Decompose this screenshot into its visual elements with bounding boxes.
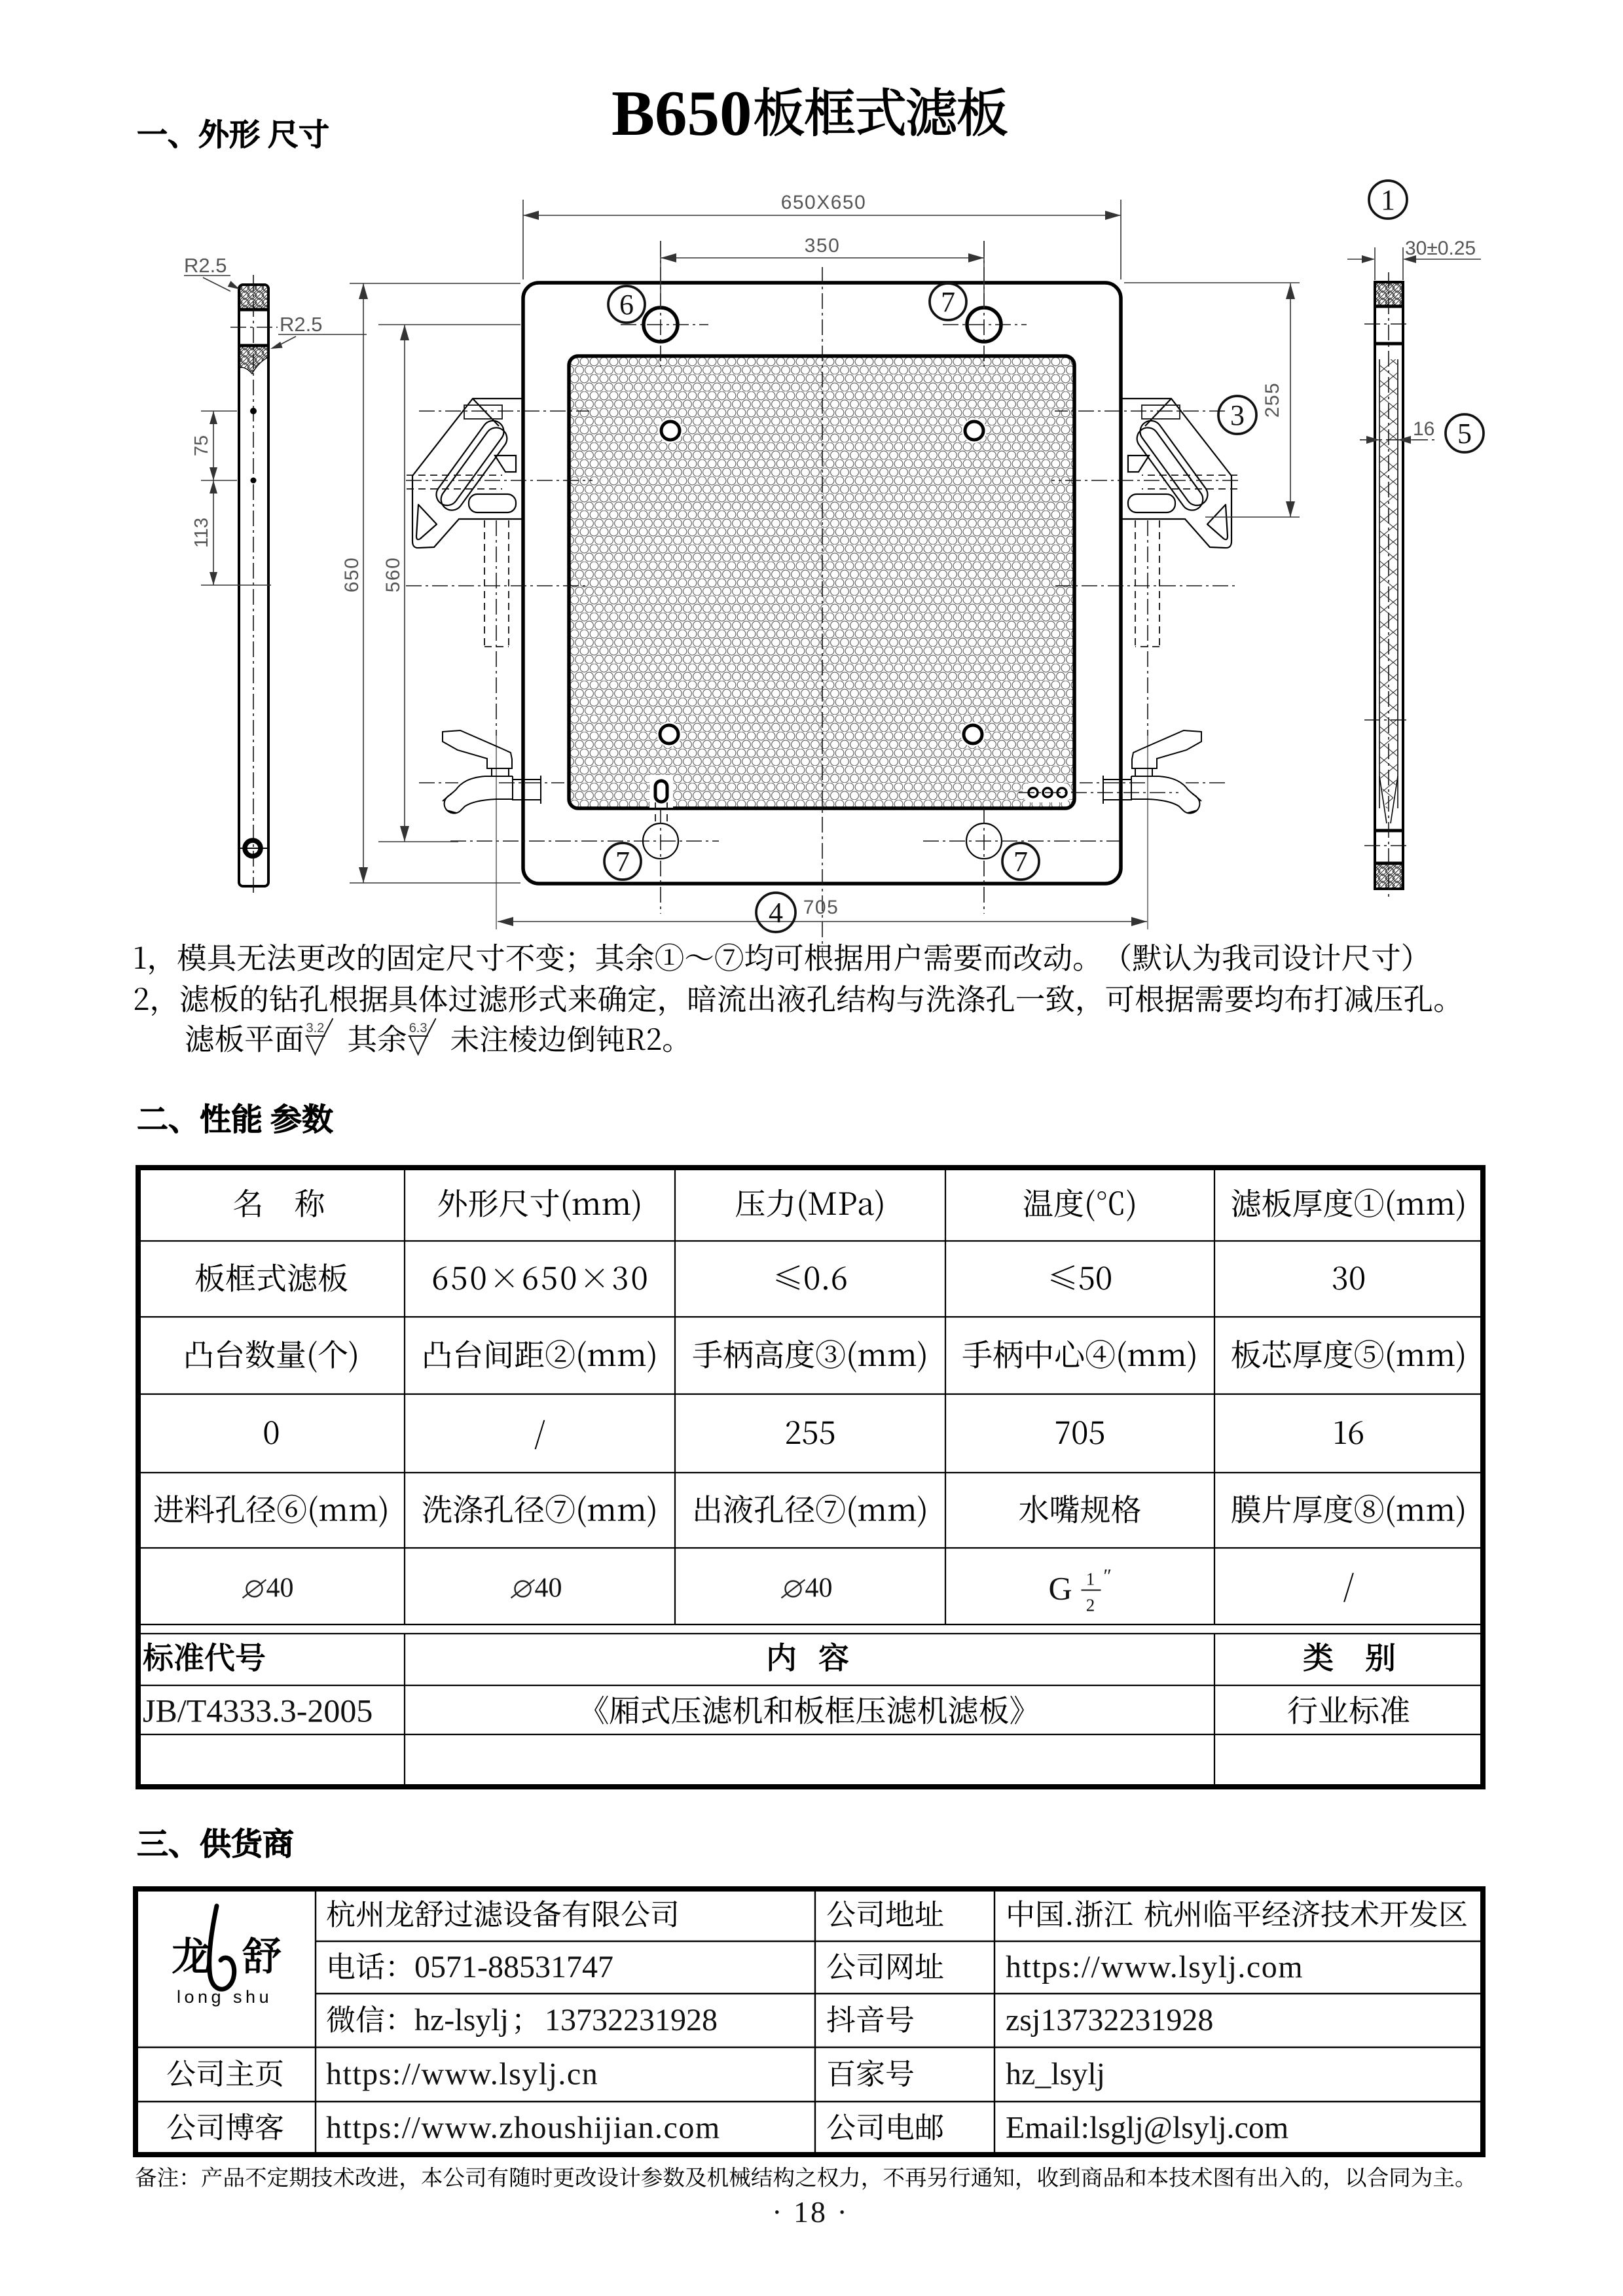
svg-text:″: ″ xyxy=(1104,1566,1112,1587)
svg-text:1: 1 xyxy=(1381,184,1395,216)
svg-text:40: 40 xyxy=(535,1573,562,1604)
svg-text:· 18 ·: · 18 · xyxy=(772,2195,849,2229)
svg-text:255: 255 xyxy=(1262,382,1283,418)
svg-text:13732231928: 13732231928 xyxy=(545,2003,718,2037)
svg-text:7: 7 xyxy=(615,846,630,878)
svg-text:705: 705 xyxy=(803,897,839,918)
svg-text:0571-88531747: 0571-88531747 xyxy=(414,1950,613,1984)
svg-text:Email:lsglj@lsylj.com: Email:lsglj@lsylj.com xyxy=(1006,2111,1288,2145)
svg-text:R2.5: R2.5 xyxy=(184,254,227,277)
svg-text:G: G xyxy=(1049,1570,1072,1607)
svg-text:16: 16 xyxy=(1413,418,1434,440)
svg-text:5: 5 xyxy=(1457,418,1472,450)
svg-text:650: 650 xyxy=(341,557,363,593)
svg-text:7: 7 xyxy=(1013,846,1028,878)
svg-text:R2.5: R2.5 xyxy=(280,313,322,336)
svg-text:75: 75 xyxy=(191,435,212,456)
svg-text:zsj13732231928: zsj13732231928 xyxy=(1006,2003,1213,2037)
svg-text:4: 4 xyxy=(769,897,783,929)
svg-text:3.2: 3.2 xyxy=(306,1021,324,1035)
svg-text:hz-lsylj: hz-lsylj xyxy=(414,2003,509,2037)
svg-text:350: 350 xyxy=(805,235,841,257)
svg-text:https://www.zhoushijian.com: https://www.zhoushijian.com xyxy=(326,2111,721,2145)
svg-text:JB/T4333.3-2005: JB/T4333.3-2005 xyxy=(143,1693,373,1729)
svg-text:6: 6 xyxy=(619,289,634,321)
svg-text:30±0.25: 30±0.25 xyxy=(1405,238,1476,259)
svg-text:hz_lsylj: hz_lsylj xyxy=(1006,2057,1105,2092)
svg-text:https://www.lsylj.com: https://www.lsylj.com xyxy=(1006,1950,1304,1984)
svg-text:3: 3 xyxy=(1230,399,1245,431)
svg-text:https://www.lsylj.cn: https://www.lsylj.cn xyxy=(326,2057,598,2092)
svg-text:40: 40 xyxy=(805,1573,833,1604)
svg-text:1: 1 xyxy=(1086,1570,1095,1589)
svg-text:560: 560 xyxy=(382,557,404,593)
svg-text:2: 2 xyxy=(1086,1596,1095,1615)
svg-text:40: 40 xyxy=(266,1573,294,1604)
svg-text:113: 113 xyxy=(191,518,212,548)
svg-text:long shu: long shu xyxy=(177,1987,272,2007)
svg-text:B650: B650 xyxy=(611,78,752,149)
svg-text:7: 7 xyxy=(941,286,955,318)
svg-text:650X650: 650X650 xyxy=(781,192,867,213)
svg-text:6.3: 6.3 xyxy=(409,1021,428,1035)
